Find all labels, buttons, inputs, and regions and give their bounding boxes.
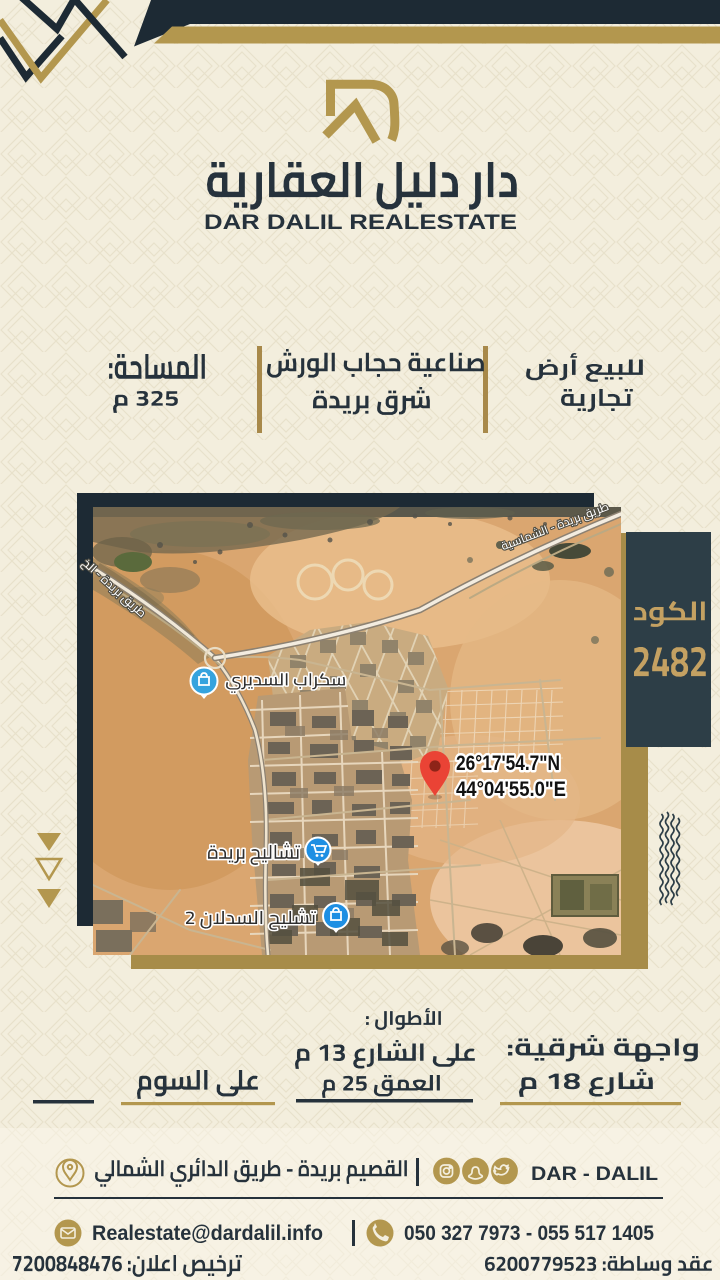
svg-text:Realestate@dardalil.info: Realestate@dardalil.info [92, 1222, 323, 1245]
svg-text:44°04'55.0"E: 44°04'55.0"E [456, 777, 566, 801]
svg-text:050 327 7973 - 055 517 1405: 050 327 7973 - 055 517 1405 [404, 1222, 654, 1245]
svg-text:26°17'54.7"N: 26°17'54.7"N [456, 751, 560, 775]
svg-text:DAR DALIL REALESTATE: DAR DALIL REALESTATE [204, 211, 517, 234]
svg-text:DAR - DALIL: DAR - DALIL [531, 1163, 658, 1185]
